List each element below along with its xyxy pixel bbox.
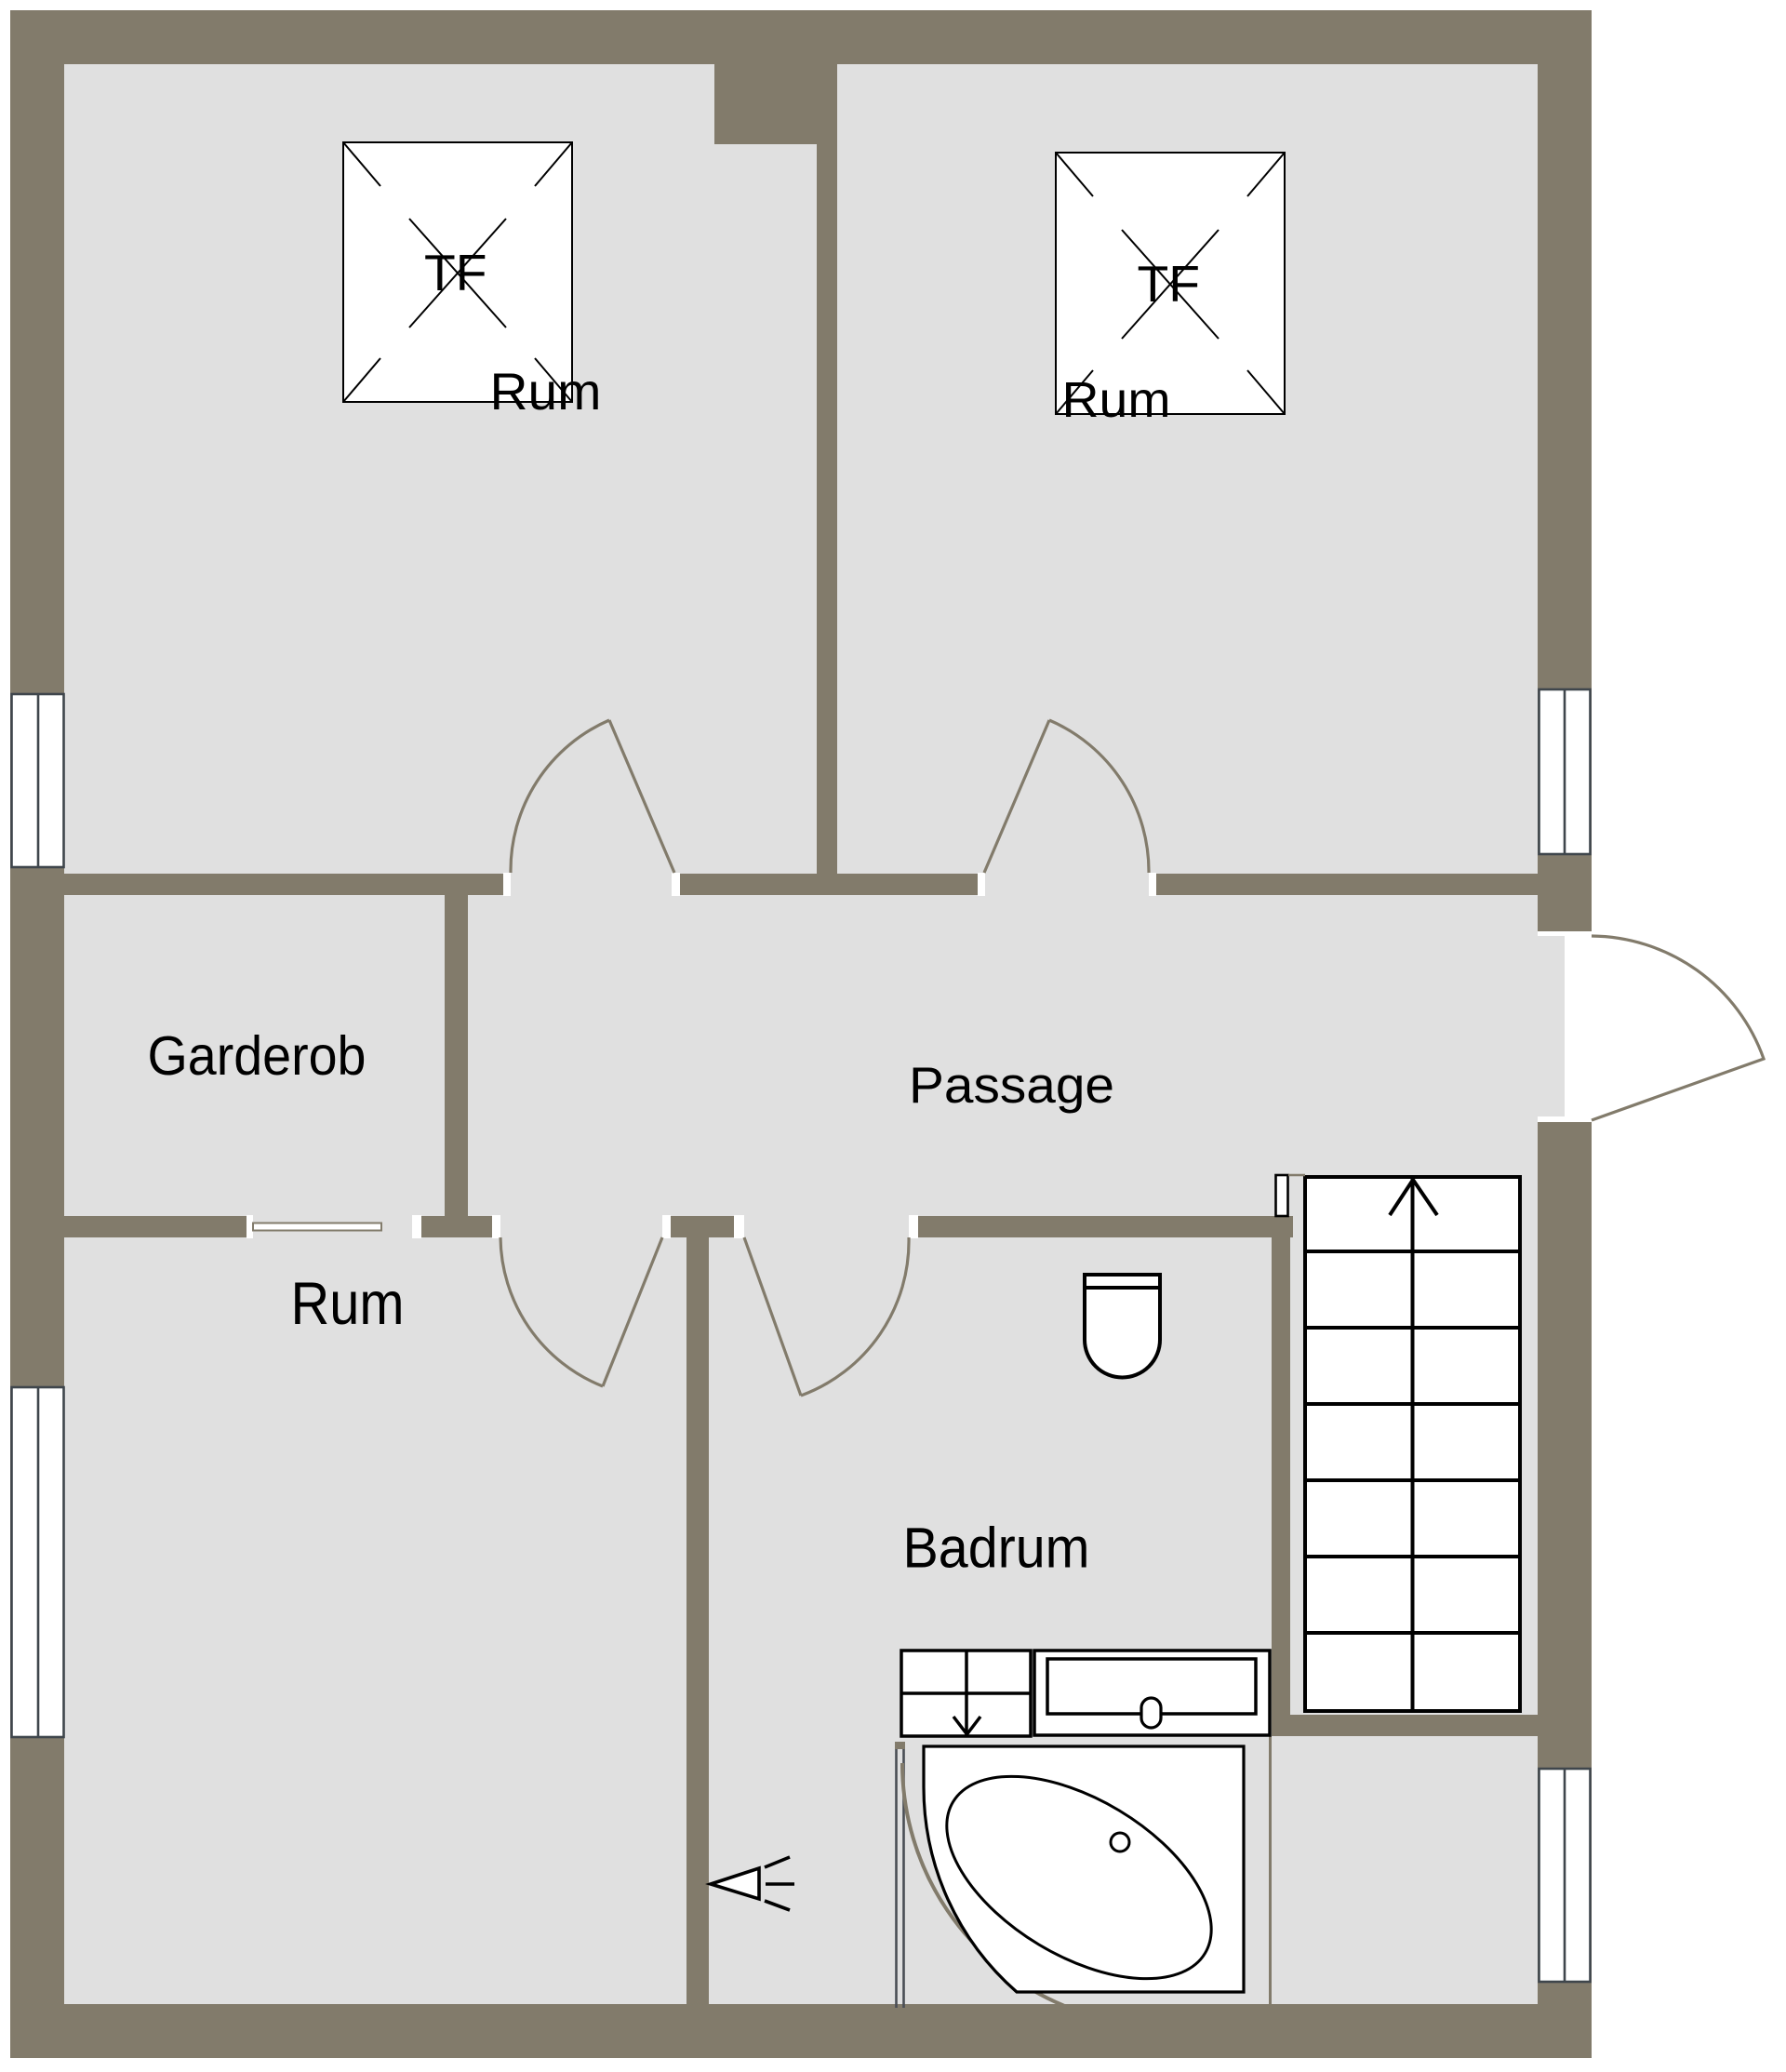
svg-text:Rum: Rum (291, 1270, 405, 1337)
svg-text:TF: TF (1138, 255, 1201, 313)
svg-text:Passage: Passage (909, 1056, 1114, 1114)
svg-text:Garderob: Garderob (148, 1024, 367, 1087)
svg-text:Rum: Rum (1062, 373, 1171, 428)
svg-text:Badrum: Badrum (903, 1517, 1090, 1581)
svg-text:TF: TF (424, 244, 487, 301)
svg-text:Rum: Rum (490, 363, 602, 421)
